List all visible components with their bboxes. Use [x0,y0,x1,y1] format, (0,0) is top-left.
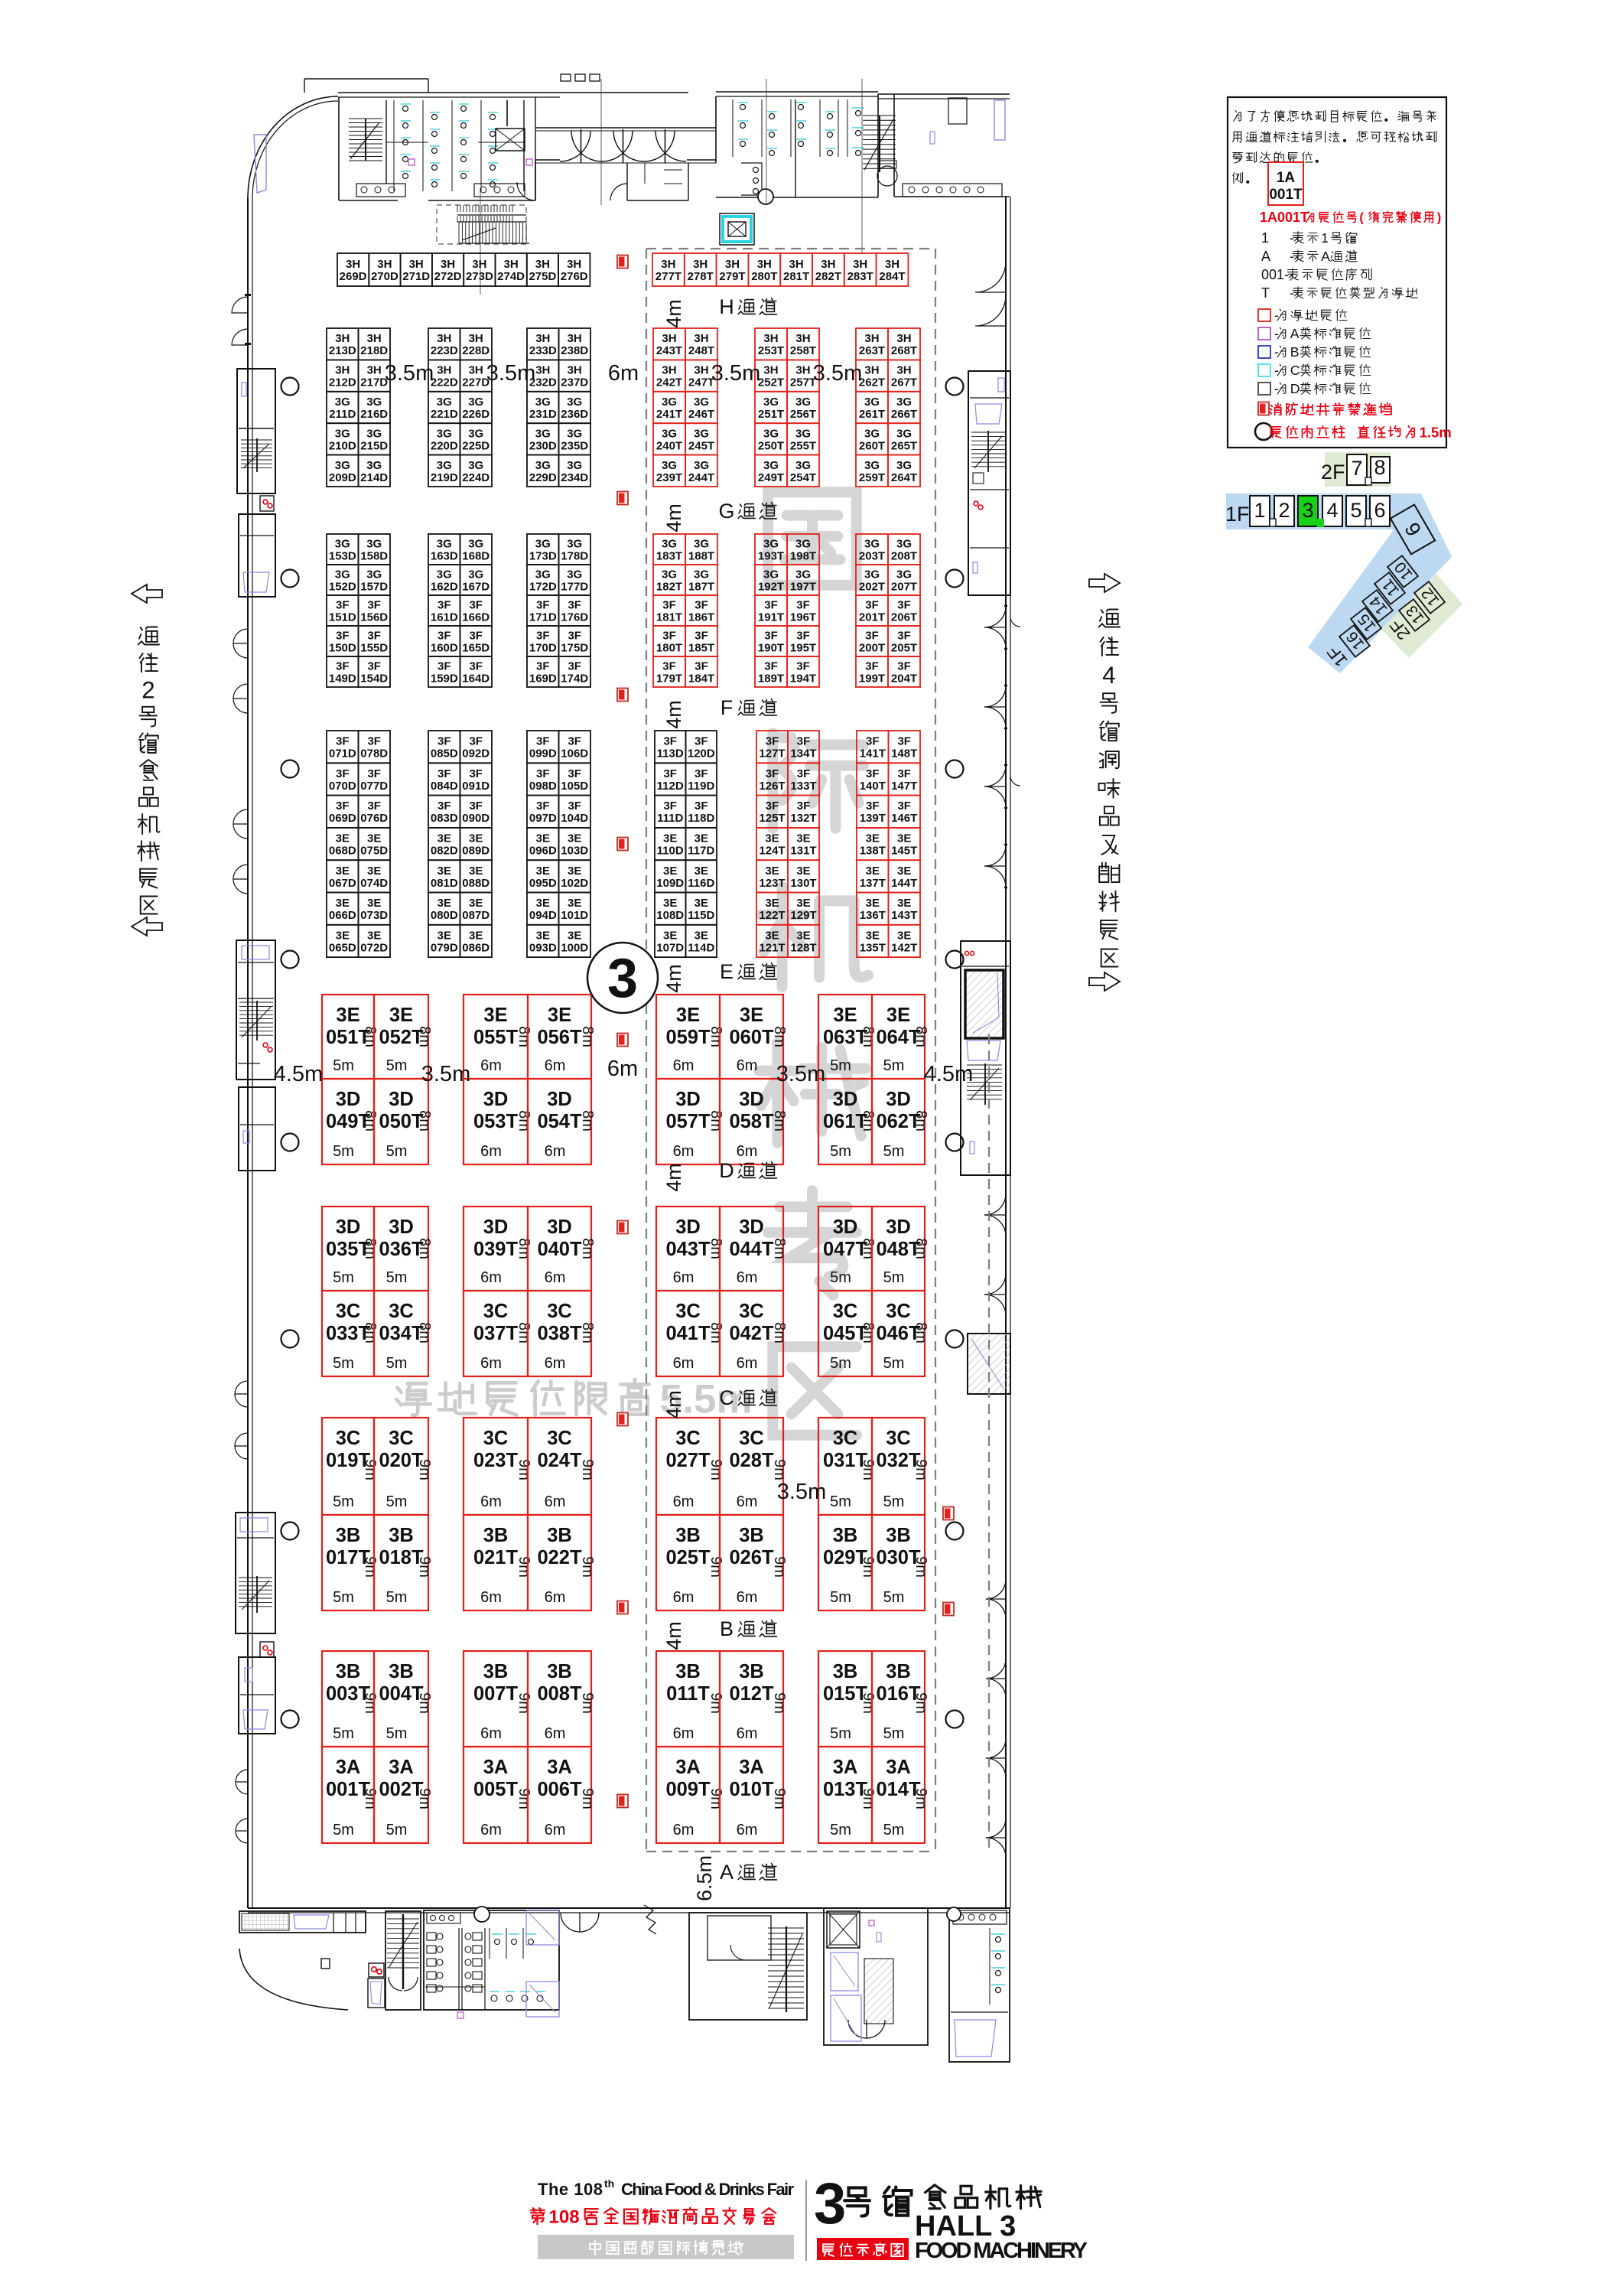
svg-text:221D: 221D [431,408,458,421]
svg-text:3: 3 [607,948,638,1009]
svg-text:114D: 114D [688,942,714,955]
svg-text:241T: 241T [656,408,682,421]
svg-text:190T: 190T [758,642,784,655]
svg-text:275D: 275D [529,270,556,283]
svg-text:6m: 6m [737,1493,758,1510]
svg-text:6m: 6m [607,1057,638,1081]
svg-text:9m: 9m [708,1788,724,1809]
svg-text:134T: 134T [790,747,816,760]
svg-text:3C: 3C [833,1301,858,1322]
svg-text:193T: 193T [758,550,784,563]
svg-text:HALL 3: HALL 3 [915,2210,1016,2242]
svg-text:252T: 252T [758,376,784,389]
svg-text:3H: 3H [535,364,550,377]
svg-text:084D: 084D [431,780,458,793]
svg-text:3F: 3F [764,660,778,673]
svg-text:9m: 9m [416,1459,433,1480]
svg-text:055T: 055T [473,1027,519,1048]
svg-text:157D: 157D [360,581,388,594]
svg-text:092D: 092D [462,747,490,760]
svg-text:3H: 3H [864,364,879,377]
svg-text:3G: 3G [795,568,811,581]
svg-text:5m: 5m [830,1355,851,1372]
svg-text:3D: 3D [675,1216,701,1238]
svg-text:237D: 237D [561,376,588,389]
svg-text:-: - [1274,381,1279,396]
svg-text:3G: 3G [366,568,382,581]
svg-text:5m: 5m [830,1725,851,1742]
svg-text:3F: 3F [469,735,483,748]
svg-text:012T: 012T [729,1683,774,1705]
svg-text:3.5m: 3.5m [813,361,862,386]
svg-text:068D: 068D [329,845,356,858]
svg-text:172D: 172D [529,581,557,594]
svg-text:179T: 179T [656,673,682,686]
svg-text:9m: 9m [860,1556,877,1578]
svg-text:3E: 3E [336,897,350,910]
svg-text:3G: 3G [366,538,382,551]
svg-text:3.5m: 3.5m [385,361,434,386]
svg-text:3E: 3E [695,865,708,878]
svg-text:102D: 102D [561,877,588,890]
svg-text:3F: 3F [536,767,550,780]
svg-text:8m: 8m [771,1238,788,1259]
svg-text:158D: 158D [360,550,388,563]
svg-text:3B: 3B [389,1525,414,1546]
svg-text:6m: 6m [545,1269,566,1286]
svg-text:6m: 6m [737,1822,758,1838]
svg-text:T: T [1261,285,1270,301]
svg-text:239T: 239T [656,471,682,484]
svg-text:3F: 3F [662,660,676,673]
svg-text:088D: 088D [462,877,490,890]
svg-text:203T: 203T [859,550,885,563]
svg-text:9m: 9m [516,1692,532,1714]
svg-text:3H: 3H [437,364,451,377]
svg-text:5m: 5m [386,1725,408,1742]
svg-text:3F: 3F [866,767,880,780]
svg-text:279T: 279T [719,270,745,283]
svg-text:3F: 3F [367,735,381,748]
svg-text:3E: 3E [765,930,779,943]
svg-text:229D: 229D [529,471,557,484]
svg-text:3B: 3B [739,1525,764,1546]
svg-text:6m: 6m [737,1143,758,1160]
svg-text:3H: 3H [568,332,582,345]
svg-text:9m: 9m [771,1692,788,1714]
svg-text:5m: 5m [333,1493,354,1510]
svg-text:C: C [719,1386,734,1409]
svg-text:3H: 3H [725,258,740,271]
svg-text:081D: 081D [431,877,458,890]
svg-text:6m: 6m [545,1589,566,1606]
svg-text:D: D [1290,381,1300,396]
svg-text:093D: 093D [529,942,557,955]
svg-text:258T: 258T [790,344,816,357]
svg-text:3G: 3G [535,396,551,409]
svg-text:9m: 9m [771,1459,788,1480]
svg-text:5m: 5m [830,1822,851,1838]
svg-text:6m: 6m [545,1355,566,1372]
svg-text:147T: 147T [891,780,917,793]
svg-text:3H: 3H [795,364,810,377]
svg-text:3E: 3E [536,930,550,943]
svg-text:278T: 278T [688,270,714,283]
svg-text:3.5m: 3.5m [777,1480,826,1504]
svg-text:123T: 123T [759,877,785,890]
svg-text:5m: 5m [386,1493,408,1510]
svg-text:5m: 5m [386,1355,408,1372]
svg-text:3H: 3H [821,258,835,271]
svg-text:8m: 8m [416,1322,433,1343]
svg-text:3H: 3H [346,258,360,271]
svg-text:3G: 3G [662,427,677,440]
svg-text:5m: 5m [883,1822,905,1838]
svg-text:China Food & Drinks Fair: China Food & Drinks Fair [621,2180,794,2199]
svg-text:199T: 199T [859,673,885,686]
svg-text:3F: 3F [897,800,911,813]
svg-text:3D: 3D [886,1216,911,1238]
svg-text:090D: 090D [462,812,490,825]
svg-text:249T: 249T [758,471,784,484]
svg-text:3G: 3G [567,396,582,409]
svg-text:079D: 079D [431,942,458,955]
svg-text:3E: 3E [796,930,810,943]
svg-text:202T: 202T [859,581,885,594]
svg-text:3F: 3F [663,800,677,813]
svg-text:223D: 223D [431,344,458,357]
svg-text:3F: 3F [438,735,451,748]
svg-text:9m: 9m [771,1788,788,1809]
svg-text:7: 7 [1351,457,1362,480]
svg-text:3B: 3B [886,1525,911,1546]
svg-text:3F: 3F [367,599,381,612]
svg-text:120D: 120D [688,747,715,760]
svg-text:3E: 3E [676,1005,700,1026]
svg-text:201T: 201T [859,611,885,624]
svg-text:H: H [719,295,734,318]
svg-text:060T: 060T [729,1027,774,1048]
svg-text:3A: 3A [547,1757,572,1778]
svg-text:3F: 3F [695,800,708,813]
svg-text:6m: 6m [608,361,639,386]
svg-text:200T: 200T [859,642,885,655]
svg-text:073D: 073D [360,909,388,922]
svg-text:3G: 3G [896,427,912,440]
svg-text:3D: 3D [547,1089,572,1110]
svg-text:230D: 230D [529,439,557,452]
svg-text:3E: 3E [336,1005,359,1026]
svg-text:6m: 6m [480,1725,502,1742]
svg-text:3C: 3C [336,1428,361,1449]
svg-text:8m: 8m [416,1238,433,1259]
svg-text:185T: 185T [688,642,714,655]
svg-text:150D: 150D [329,642,356,655]
svg-text:9m: 9m [362,1692,379,1714]
svg-text:3C: 3C [483,1301,509,1322]
svg-text:1A001T: 1A001T [1260,210,1309,225]
svg-text:3F: 3F [695,599,708,612]
svg-text:3G: 3G [535,538,551,551]
svg-text:3E: 3E [438,930,451,943]
svg-text:9m: 9m [860,1692,877,1714]
svg-text:5m: 5m [386,1057,408,1074]
svg-text:6m: 6m [480,1589,502,1606]
svg-text:109D: 109D [656,877,684,890]
svg-text:3E: 3E [469,930,483,943]
svg-text:3.5m: 3.5m [711,361,760,386]
svg-text:3F: 3F [797,735,811,748]
svg-text:039T: 039T [473,1239,519,1260]
svg-text:3D: 3D [675,1089,701,1110]
svg-text:187T: 187T [688,581,714,594]
svg-text:): ) [1437,211,1442,225]
svg-text:3G: 3G [535,568,551,581]
svg-text:213D: 213D [329,344,356,357]
svg-text:212D: 212D [329,376,356,389]
svg-text:3G: 3G [864,538,880,551]
svg-text:9m: 9m [771,1556,788,1578]
svg-text:8m: 8m [708,1110,724,1132]
svg-text:4m: 4m [662,503,685,532]
svg-text:1.5m: 1.5m [1420,424,1452,440]
svg-text:3F: 3F [662,630,676,643]
svg-text:006T: 006T [537,1779,582,1800]
svg-text:3F: 3F [663,735,677,748]
svg-text:3D: 3D [739,1216,764,1238]
svg-text:209D: 209D [329,471,356,484]
svg-text:076D: 076D [360,812,388,825]
svg-text:3H: 3H [504,258,519,271]
svg-text:256T: 256T [790,408,816,421]
svg-text:3D: 3D [483,1216,509,1238]
svg-text:121T: 121T [759,942,785,955]
svg-text:198T: 198T [790,550,816,563]
svg-text:3H: 3H [694,332,708,345]
svg-text:124T: 124T [759,845,785,858]
svg-text:3F: 3F [797,800,811,813]
svg-text:8m: 8m [516,1238,532,1259]
svg-text:170D: 170D [529,642,557,655]
svg-text:254T: 254T [790,471,816,484]
svg-text:174D: 174D [561,673,588,686]
svg-text:3F: 3F [367,800,381,813]
svg-text:211D: 211D [329,408,356,421]
svg-text:3A: 3A [483,1757,509,1778]
svg-text:3F: 3F [536,660,550,673]
svg-text:110D: 110D [657,845,684,858]
svg-text:3F: 3F [469,630,483,643]
svg-text:206T: 206T [891,611,917,624]
svg-text:243T: 243T [656,344,682,357]
svg-text:3F: 3F [897,660,911,673]
svg-text:065D: 065D [329,942,356,955]
svg-text:028T: 028T [729,1450,774,1471]
svg-text:3E: 3E [568,865,581,878]
svg-text:156D: 156D [360,611,388,624]
svg-text:3H: 3H [885,258,899,271]
svg-text:3F: 3F [764,599,778,612]
svg-text:3A: 3A [739,1757,764,1778]
svg-text:3G: 3G [896,568,912,581]
svg-text:9m: 9m [416,1692,433,1714]
svg-text:-: - [1274,308,1279,323]
svg-text:3H: 3H [367,364,382,377]
svg-text:6m: 6m [673,1057,695,1074]
svg-text:F: F [721,696,734,719]
svg-text:112D: 112D [657,780,684,793]
svg-text:3F: 3F [865,599,879,612]
svg-text:9m: 9m [362,1459,379,1480]
svg-text:163D: 163D [431,550,458,563]
svg-text:3E: 3E [663,832,677,845]
svg-text:5m: 5m [333,1822,354,1838]
svg-text:6m: 6m [480,1493,502,1510]
svg-text:3H: 3H [693,258,708,271]
svg-text:266T: 266T [891,408,917,421]
svg-text:3E: 3E [765,865,779,878]
svg-text:042T: 042T [729,1323,774,1344]
svg-text:3E: 3E [796,832,810,845]
svg-text:005T: 005T [473,1779,519,1800]
svg-text:3E: 3E [695,832,708,845]
svg-text:8m: 8m [771,1026,788,1047]
svg-text:3G: 3G [437,459,452,472]
svg-text:103D: 103D [561,845,588,858]
svg-text:264T: 264T [891,471,917,484]
svg-text:089D: 089D [462,845,490,858]
svg-text:3E: 3E [663,930,677,943]
svg-text:173D: 173D [529,550,557,563]
svg-text:3D: 3D [547,1216,572,1238]
svg-text:3F: 3F [336,735,350,748]
svg-text:3G: 3G [335,459,350,472]
svg-text:4m: 4m [662,964,685,993]
svg-text:104D: 104D [561,812,588,825]
svg-text:3E: 3E [548,1005,571,1026]
svg-text:3E: 3E [866,865,880,878]
svg-text:146T: 146T [891,812,917,825]
svg-text:3G: 3G [567,427,582,440]
svg-text:6m: 6m [737,1355,758,1372]
svg-text:3C: 3C [483,1428,509,1449]
svg-text:9m: 9m [579,1788,596,1809]
svg-text:244T: 244T [688,471,714,484]
svg-text:086D: 086D [462,942,490,955]
svg-text:3H: 3H [335,332,350,345]
svg-text:3E: 3E [568,832,581,845]
svg-text:8m: 8m [771,1322,788,1343]
svg-text:3F: 3F [367,630,381,643]
svg-text:3G: 3G [896,538,912,551]
svg-text:129T: 129T [790,909,816,922]
svg-text:The 108: The 108 [538,2180,603,2199]
svg-text:010T: 010T [729,1779,774,1800]
svg-text:136T: 136T [860,909,886,922]
svg-text:4m: 4m [662,1163,685,1192]
svg-text:8m: 8m [516,1110,532,1132]
svg-text:184T: 184T [688,673,714,686]
svg-text:5m: 5m [883,1493,905,1510]
svg-text:3C: 3C [547,1428,572,1449]
svg-text:3H: 3H [535,332,550,345]
svg-text:3D: 3D [833,1089,858,1110]
svg-text:071D: 071D [329,747,356,760]
svg-text:3H: 3H [469,332,483,345]
svg-text:077D: 077D [360,780,388,793]
svg-text:4: 4 [1102,662,1115,689]
svg-text:210D: 210D [329,439,356,452]
svg-text:177D: 177D [561,581,588,594]
svg-text:140T: 140T [860,780,886,793]
svg-text:E: E [720,960,734,983]
svg-text:3G: 3G [468,459,483,472]
svg-text:1: 1 [1261,230,1269,246]
svg-text:9m: 9m [708,1459,724,1480]
svg-text:3.5m: 3.5m [776,1062,825,1086]
svg-text:9m: 9m [708,1692,724,1714]
svg-text:186T: 186T [688,611,714,624]
svg-text:145T: 145T [891,845,917,858]
svg-text:189T: 189T [758,673,784,686]
svg-text:3E: 3E [866,930,880,943]
svg-text:3E: 3E [866,897,880,910]
svg-text:8m: 8m [912,1322,929,1343]
svg-text:127T: 127T [759,747,785,760]
svg-text:3D: 3D [336,1216,361,1238]
svg-text:160D: 160D [431,642,458,655]
svg-text:3H: 3H [662,364,676,377]
svg-text:144T: 144T [891,877,917,890]
svg-text:3G: 3G [763,568,779,581]
svg-text:007T: 007T [473,1683,519,1705]
svg-text:8m: 8m [416,1110,433,1132]
svg-text:3E: 3E [438,865,451,878]
svg-text:3F: 3F [662,599,676,612]
svg-text:6m: 6m [480,1355,502,1372]
svg-text:9m: 9m [579,1692,596,1714]
svg-text:3E: 3E [866,832,880,845]
svg-text:3G: 3G [335,396,350,409]
svg-text:3C: 3C [886,1301,911,1322]
svg-text:3H: 3H [896,364,911,377]
svg-text:2F: 2F [1321,461,1345,484]
svg-text:001-: 001- [1261,267,1289,282]
svg-text:5m: 5m [333,1355,354,1372]
svg-text:218D: 218D [360,344,388,357]
svg-text:3G: 3G [335,538,350,551]
svg-text:3A: 3A [833,1757,858,1778]
svg-text:231D: 231D [529,408,557,421]
svg-text:8m: 8m [362,1110,379,1132]
svg-text:6m: 6m [737,1269,758,1286]
svg-text:3G: 3G [864,459,880,472]
svg-text:6m: 6m [673,1589,695,1606]
svg-text:260T: 260T [859,439,885,452]
svg-text:6m: 6m [545,1822,566,1838]
svg-text:3H: 3H [662,332,676,345]
svg-text:6m: 6m [480,1822,502,1838]
svg-text:253T: 253T [758,344,784,357]
svg-text:126T: 126T [759,780,785,793]
svg-text:117D: 117D [688,845,714,858]
svg-text:8m: 8m [516,1026,532,1047]
svg-text:3E: 3E [469,897,483,910]
svg-text:3G: 3G [567,568,582,581]
svg-text:137T: 137T [860,877,886,890]
svg-text:196T: 196T [790,611,816,624]
svg-text:3H: 3H [568,364,582,377]
